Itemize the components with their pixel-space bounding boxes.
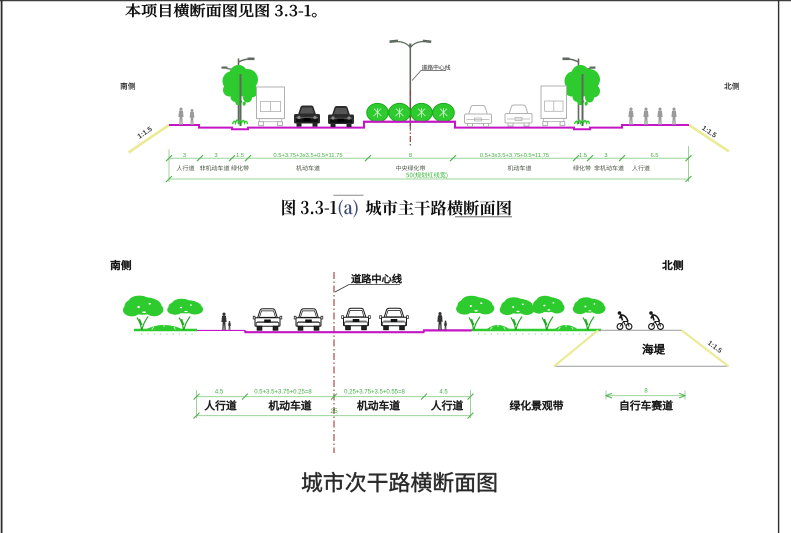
svg-text:4.5: 4.5	[439, 389, 448, 395]
svg-text:0.5+3.75+3x3.5+0.5=11.75: 0.5+3.75+3x3.5+0.5=11.75	[273, 153, 342, 159]
svg-text:0.5+3x3.5+3.75+0.5=11.75: 0.5+3x3.5+3.75+0.5=11.75	[480, 153, 549, 159]
svg-text:3: 3	[604, 153, 607, 159]
svg-text:25: 25	[330, 408, 338, 415]
svg-text:4.5: 4.5	[215, 389, 224, 395]
svg-text:6.5: 6.5	[650, 153, 658, 159]
svg-text:8: 8	[644, 388, 648, 394]
svg-text:1.5: 1.5	[236, 153, 244, 159]
svg-text:1:1.5: 1:1.5	[706, 340, 723, 355]
svg-text:8: 8	[409, 153, 412, 159]
svg-text:3: 3	[214, 153, 217, 159]
svg-text:3: 3	[183, 153, 186, 159]
svg-text:0.25+3.75+3.5+0.55=8: 0.25+3.75+3.5+0.55=8	[344, 389, 405, 395]
svg-text:1.5: 1.5	[579, 153, 587, 159]
svg-text:0.5+3.5+3.75+0.25=8: 0.5+3.5+3.75+0.25=8	[254, 389, 312, 395]
